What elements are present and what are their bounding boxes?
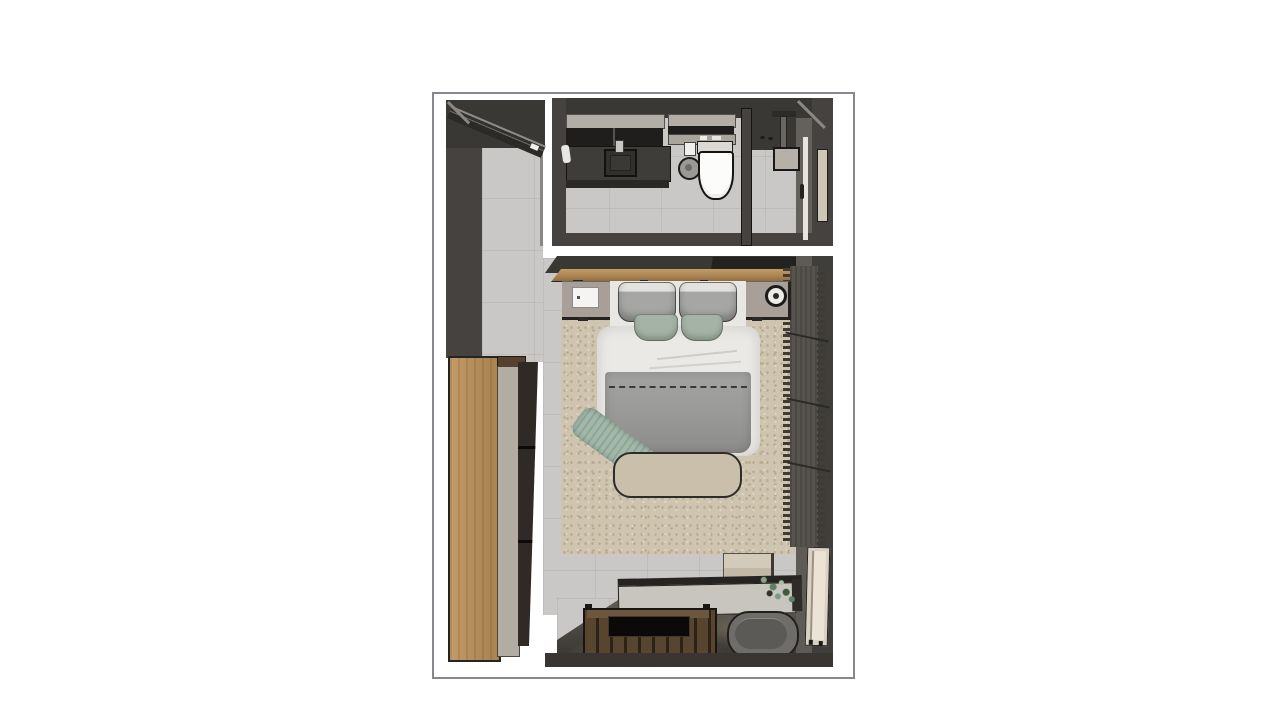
blanket-stitch-line bbox=[609, 386, 747, 388]
nightstand-left-foot bbox=[578, 317, 588, 321]
side-stool-top bbox=[724, 554, 771, 568]
notepad bbox=[572, 287, 599, 308]
bathroom-wall-west bbox=[552, 98, 566, 246]
floor-plan-canvas bbox=[0, 0, 1280, 720]
nightstand-right bbox=[742, 281, 791, 320]
shower-partition bbox=[741, 108, 752, 246]
nightstand-left bbox=[562, 281, 614, 320]
potted-plant bbox=[753, 567, 800, 608]
shower-plate bbox=[773, 147, 800, 171]
towel-item bbox=[700, 136, 707, 140]
toilet-bowl bbox=[698, 151, 734, 200]
faucet bbox=[615, 140, 624, 153]
notepad-mark bbox=[577, 296, 580, 299]
wardrobe-side-panel bbox=[497, 366, 520, 657]
duvet-fold bbox=[657, 350, 737, 360]
curtain-band bbox=[790, 266, 818, 547]
vanity-drawers bbox=[566, 180, 669, 188]
accent-pillow-left bbox=[634, 314, 678, 341]
bathroom-wall-panel bbox=[817, 149, 828, 222]
speaker bbox=[765, 285, 787, 307]
curtain-edge-right bbox=[817, 272, 825, 545]
speaker-center bbox=[773, 293, 779, 299]
mirror-foot-2 bbox=[819, 641, 823, 646]
floor-tray bbox=[608, 616, 690, 637]
mirror-panel bbox=[810, 551, 826, 640]
upper-cabinet-top bbox=[566, 114, 665, 129]
towel-shelf-gap bbox=[668, 126, 734, 134]
nightstand-right-foot bbox=[752, 317, 762, 321]
leaning-mirror bbox=[805, 547, 831, 647]
bed-end-bench bbox=[613, 452, 742, 498]
floor-drain-dot bbox=[760, 136, 765, 139]
shower-arm bbox=[780, 116, 787, 151]
floor-drain-dot-2 bbox=[768, 137, 773, 140]
toilet-paper bbox=[684, 142, 696, 156]
slatted-mat bbox=[583, 604, 713, 660]
bathroom-wall-south bbox=[552, 233, 833, 246]
sink bbox=[604, 149, 637, 177]
accent-pillow-right bbox=[681, 314, 723, 341]
sink-basin bbox=[610, 155, 631, 171]
bath-block-edge bbox=[540, 148, 543, 246]
entry-door-handle bbox=[530, 143, 539, 151]
wardrobe-top bbox=[448, 356, 501, 662]
hall-floor bbox=[482, 146, 543, 362]
bedroom-wall-south bbox=[545, 653, 833, 667]
waste-bin-inner bbox=[685, 164, 692, 171]
pouf bbox=[727, 611, 799, 659]
towel-item-2 bbox=[712, 136, 721, 140]
shelf-divider bbox=[518, 446, 538, 449]
mirror-foot bbox=[809, 640, 813, 645]
duvet-fold-2 bbox=[649, 361, 741, 369]
bathroom-door-handle bbox=[800, 184, 804, 199]
pouf-top bbox=[735, 618, 787, 649]
